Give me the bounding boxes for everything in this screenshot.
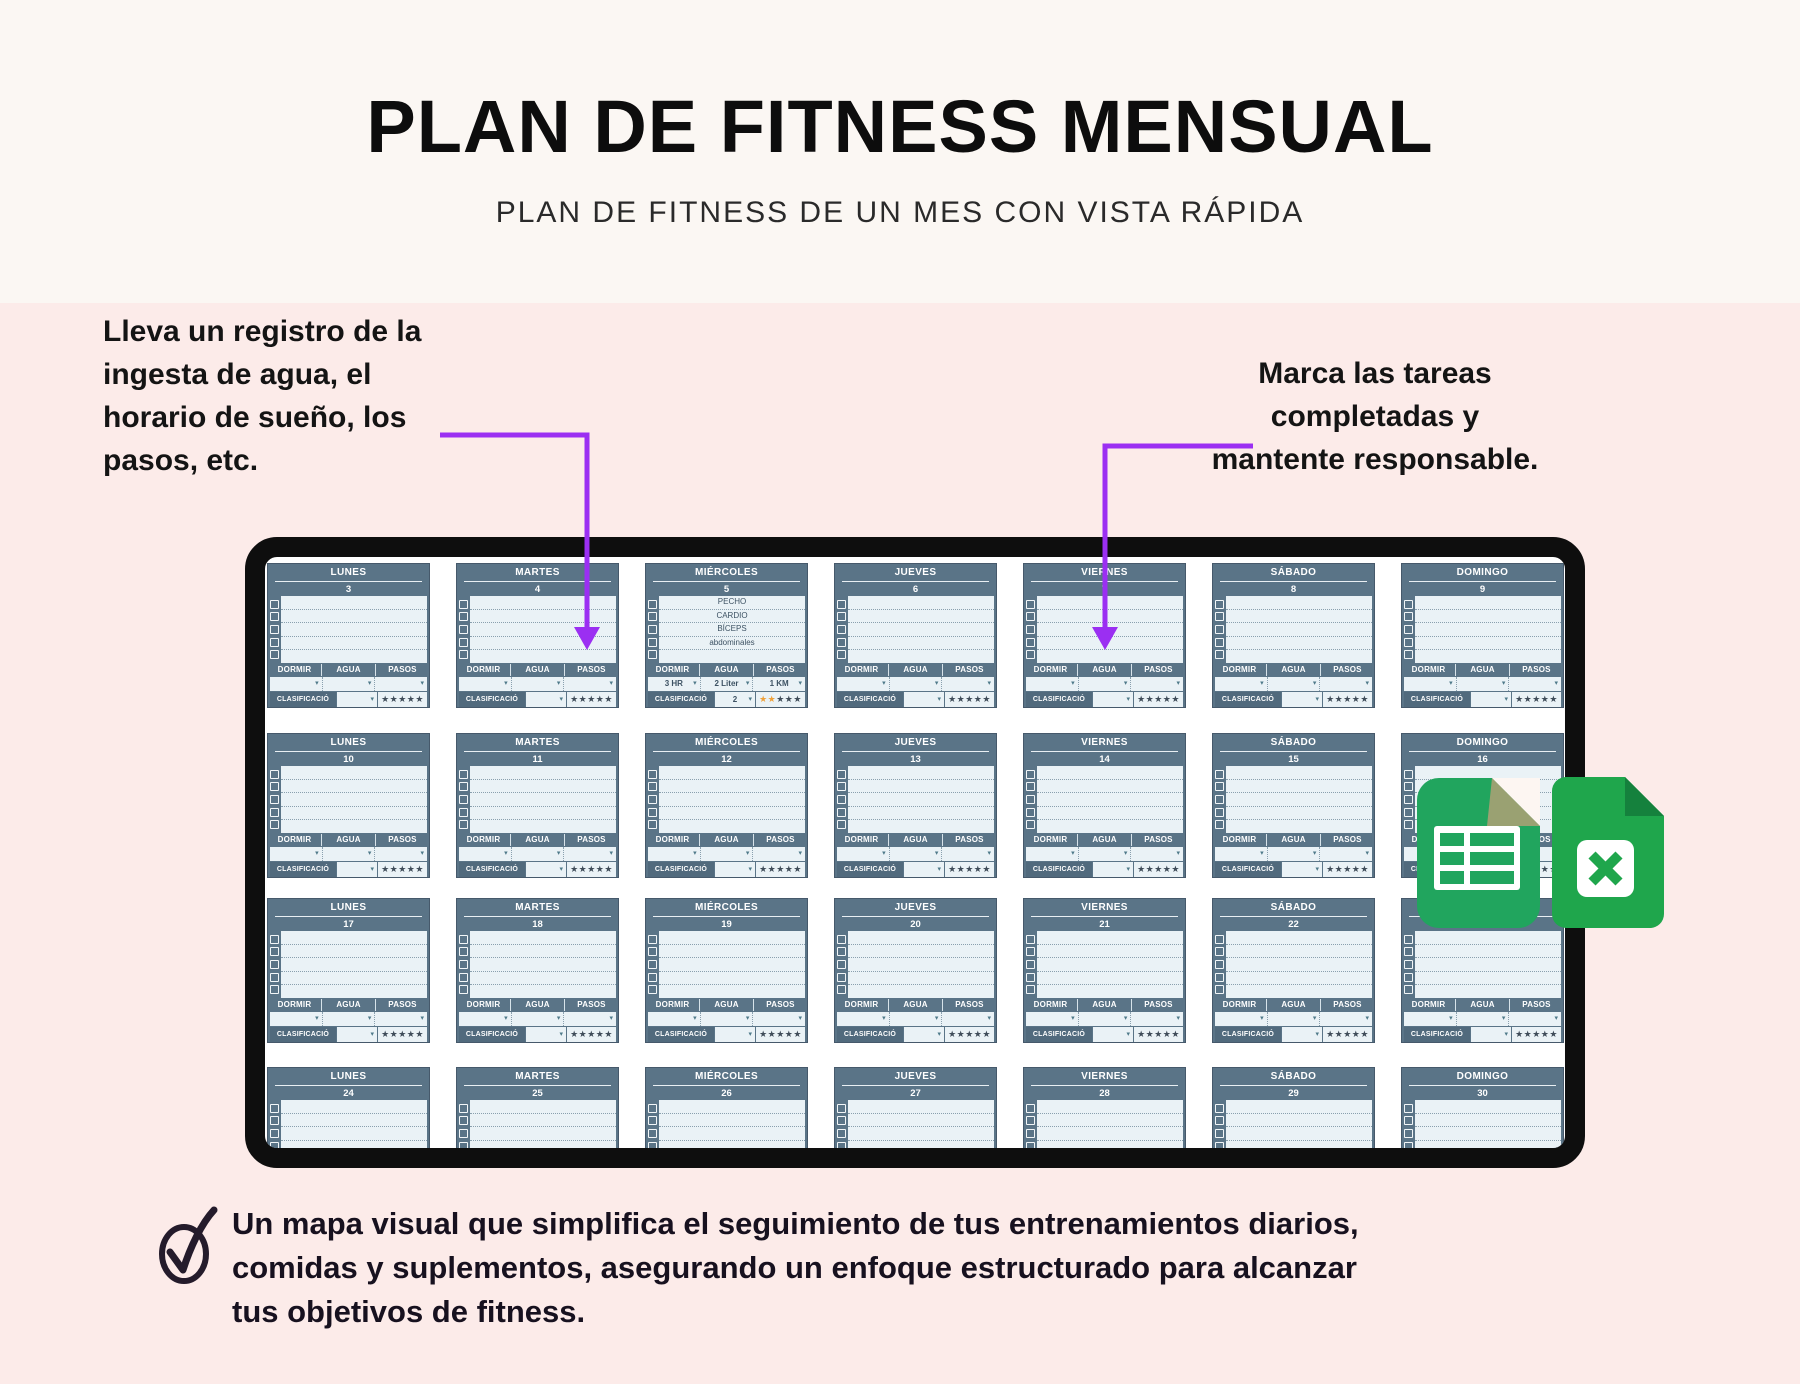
task-row[interactable] [1226, 793, 1372, 807]
task-checkbox-icon[interactable] [648, 782, 657, 791]
task-row[interactable] [281, 972, 427, 986]
task-row[interactable] [281, 623, 427, 637]
task-checkbox-icon[interactable] [1026, 960, 1035, 969]
task-checkbox-icon[interactable] [1404, 960, 1413, 969]
task-row[interactable] [1226, 807, 1372, 821]
task-row[interactable] [281, 945, 427, 959]
rating-stars[interactable]: ★★★★★ [945, 692, 994, 707]
task-row[interactable] [1226, 650, 1372, 663]
task-checkbox-icon[interactable] [459, 638, 468, 647]
water-value-dropdown[interactable]: ▾ [511, 677, 564, 691]
task-row[interactable] [848, 820, 994, 833]
task-checkbox-icon[interactable] [1026, 1129, 1035, 1138]
task-row[interactable] [281, 1141, 427, 1155]
water-value-dropdown[interactable]: ▾ [322, 677, 375, 691]
task-checkbox-icon[interactable] [459, 1142, 468, 1151]
task-checkbox-icon[interactable] [837, 1116, 846, 1125]
task-checkbox-icon[interactable] [648, 820, 657, 829]
task-checkbox-icon[interactable] [1404, 1116, 1413, 1125]
task-checkbox-icon[interactable] [1404, 770, 1413, 779]
sleep-value-dropdown[interactable]: ▾ [270, 677, 322, 691]
task-checkbox-icon[interactable] [459, 1104, 468, 1113]
task-row[interactable]: PECHO [659, 596, 805, 610]
task-checkbox-icon[interactable] [1404, 947, 1413, 956]
task-row[interactable] [848, 637, 994, 651]
task-checkbox-icon[interactable] [648, 1104, 657, 1113]
rating-stars[interactable]: ★★★★★ [1323, 862, 1372, 877]
water-value-dropdown[interactable]: ▾ [889, 847, 942, 861]
task-row[interactable] [1415, 1127, 1561, 1141]
task-checkbox-icon[interactable] [270, 770, 279, 779]
task-row[interactable] [1226, 985, 1372, 998]
rating-value-dropdown[interactable]: ▾ [1282, 1027, 1322, 1042]
task-checkbox-icon[interactable] [1026, 638, 1035, 647]
steps-value-dropdown[interactable]: ▾ [563, 677, 616, 691]
task-checkbox-icon[interactable] [1215, 1129, 1224, 1138]
rating-stars[interactable]: ★★★★★ [1134, 1027, 1183, 1042]
task-row[interactable] [470, 780, 616, 794]
sleep-value-dropdown[interactable]: ▾ [1026, 1012, 1078, 1026]
task-row[interactable] [1037, 807, 1183, 821]
task-row[interactable] [1415, 945, 1561, 959]
task-checkbox-icon[interactable] [837, 600, 846, 609]
task-checkbox-icon[interactable] [270, 985, 279, 994]
task-row[interactable]: CARDIO [659, 610, 805, 624]
task-checkbox-icon[interactable] [1215, 1104, 1224, 1113]
task-row[interactable] [1037, 766, 1183, 780]
task-checkbox-icon[interactable] [1026, 1116, 1035, 1125]
steps-value-dropdown[interactable]: ▾ [1130, 847, 1183, 861]
task-checkbox-icon[interactable] [270, 1142, 279, 1151]
task-checkbox-icon[interactable] [1026, 973, 1035, 982]
water-value-dropdown[interactable]: ▾ [1078, 677, 1131, 691]
task-row[interactable] [470, 958, 616, 972]
task-checkbox-icon[interactable] [459, 612, 468, 621]
task-row[interactable] [1037, 972, 1183, 986]
task-checkbox-icon[interactable] [1404, 795, 1413, 804]
task-checkbox-icon[interactable] [648, 947, 657, 956]
task-row[interactable] [848, 766, 994, 780]
task-checkbox-icon[interactable] [1026, 625, 1035, 634]
task-row[interactable] [848, 985, 994, 998]
task-row[interactable] [1226, 596, 1372, 610]
task-row[interactable] [281, 637, 427, 651]
task-row[interactable] [659, 1154, 805, 1167]
sleep-value-dropdown[interactable]: ▾ [1215, 677, 1267, 691]
task-checkbox-icon[interactable] [837, 960, 846, 969]
task-row[interactable] [470, 1114, 616, 1128]
task-checkbox-icon[interactable] [1404, 1154, 1413, 1163]
task-checkbox-icon[interactable] [1215, 650, 1224, 659]
task-checkbox-icon[interactable] [270, 1154, 279, 1163]
task-row[interactable] [848, 1141, 994, 1155]
rating-value-dropdown[interactable]: ▾ [337, 1027, 377, 1042]
task-row[interactable] [1037, 623, 1183, 637]
task-checkbox-icon[interactable] [1026, 935, 1035, 944]
rating-value-dropdown[interactable]: ▾ [1471, 1027, 1511, 1042]
task-row[interactable] [470, 793, 616, 807]
rating-value-dropdown[interactable]: ▾ [1282, 692, 1322, 707]
sleep-value-dropdown[interactable]: ▾ [1026, 847, 1078, 861]
task-row[interactable] [1415, 972, 1561, 986]
task-row[interactable] [470, 610, 616, 624]
task-row[interactable] [848, 931, 994, 945]
task-row[interactable] [1037, 931, 1183, 945]
task-row[interactable] [281, 985, 427, 998]
task-checkbox-icon[interactable] [459, 625, 468, 634]
task-checkbox-icon[interactable] [1404, 638, 1413, 647]
rating-value-dropdown[interactable]: ▾ [337, 862, 377, 877]
sleep-value-dropdown[interactable]: ▾ [648, 1012, 700, 1026]
task-checkbox-icon[interactable] [837, 625, 846, 634]
rating-stars[interactable]: ★★★★★ [1323, 1027, 1372, 1042]
rating-stars[interactable]: ★★★★★ [756, 862, 805, 877]
task-row[interactable] [848, 958, 994, 972]
task-checkbox-icon[interactable] [837, 820, 846, 829]
water-value-dropdown[interactable]: ▾ [889, 677, 942, 691]
task-row[interactable] [470, 972, 616, 986]
task-checkbox-icon[interactable] [1215, 808, 1224, 817]
task-checkbox-icon[interactable] [648, 935, 657, 944]
steps-value-dropdown[interactable]: ▾ [941, 677, 994, 691]
task-row[interactable] [470, 766, 616, 780]
rating-stars[interactable]: ★★★★★ [378, 1027, 427, 1042]
task-checkbox-icon[interactable] [1026, 1154, 1035, 1163]
task-row[interactable] [281, 780, 427, 794]
sleep-value-dropdown[interactable]: ▾ [1404, 1012, 1456, 1026]
task-row[interactable] [281, 807, 427, 821]
sleep-value-dropdown[interactable]: ▾ [1404, 677, 1456, 691]
task-row[interactable] [659, 1114, 805, 1128]
steps-value-dropdown[interactable]: ▾ [941, 1012, 994, 1026]
water-value-dropdown[interactable]: ▾ [889, 1012, 942, 1026]
task-row[interactable] [848, 793, 994, 807]
rating-value-dropdown[interactable]: ▾ [1282, 862, 1322, 877]
sleep-value-dropdown[interactable]: ▾ [270, 1012, 322, 1026]
sleep-value-dropdown[interactable]: ▾ [270, 847, 322, 861]
task-row[interactable] [281, 958, 427, 972]
task-checkbox-icon[interactable] [459, 600, 468, 609]
task-checkbox-icon[interactable] [837, 973, 846, 982]
task-row[interactable] [848, 1154, 994, 1167]
task-checkbox-icon[interactable] [648, 973, 657, 982]
water-value-dropdown[interactable]: ▾ [1456, 677, 1509, 691]
task-row[interactable] [1415, 637, 1561, 651]
water-value-dropdown[interactable]: ▾ [1078, 1012, 1131, 1026]
rating-stars[interactable]: ★★★★★ [756, 1027, 805, 1042]
task-checkbox-icon[interactable] [648, 625, 657, 634]
task-row[interactable] [1226, 1154, 1372, 1167]
steps-value-dropdown[interactable]: ▾ [1508, 1012, 1561, 1026]
rating-value-dropdown[interactable]: ▾ [904, 1027, 944, 1042]
task-row[interactable] [281, 766, 427, 780]
task-checkbox-icon[interactable] [1215, 947, 1224, 956]
task-checkbox-icon[interactable] [837, 612, 846, 621]
task-row[interactable] [1415, 623, 1561, 637]
task-row[interactable] [1037, 596, 1183, 610]
task-checkbox-icon[interactable] [837, 1129, 846, 1138]
task-checkbox-icon[interactable] [837, 638, 846, 647]
task-checkbox-icon[interactable] [270, 1104, 279, 1113]
task-row[interactable] [1037, 1127, 1183, 1141]
steps-value-dropdown[interactable]: ▾ [563, 847, 616, 861]
task-row[interactable] [848, 650, 994, 663]
steps-value-dropdown[interactable]: ▾ [1319, 847, 1372, 861]
task-checkbox-icon[interactable] [1404, 973, 1413, 982]
task-checkbox-icon[interactable] [837, 1142, 846, 1151]
water-value-dropdown[interactable]: ▾ [700, 847, 753, 861]
task-checkbox-icon[interactable] [648, 650, 657, 659]
task-checkbox-icon[interactable] [459, 770, 468, 779]
task-checkbox-icon[interactable] [1026, 600, 1035, 609]
steps-value-dropdown[interactable]: ▾ [1130, 1012, 1183, 1026]
rating-value-dropdown[interactable]: ▾ [526, 692, 566, 707]
task-row[interactable] [659, 958, 805, 972]
task-checkbox-icon[interactable] [459, 947, 468, 956]
task-row[interactable] [848, 1127, 994, 1141]
task-row[interactable] [659, 1127, 805, 1141]
task-checkbox-icon[interactable] [837, 808, 846, 817]
task-checkbox-icon[interactable] [270, 625, 279, 634]
task-checkbox-icon[interactable] [1404, 820, 1413, 829]
task-row[interactable] [1226, 972, 1372, 986]
sleep-value-dropdown[interactable]: ▾ [459, 847, 511, 861]
task-row[interactable] [1226, 1114, 1372, 1128]
task-checkbox-icon[interactable] [459, 795, 468, 804]
task-checkbox-icon[interactable] [1026, 770, 1035, 779]
task-checkbox-icon[interactable] [270, 795, 279, 804]
task-checkbox-icon[interactable] [270, 782, 279, 791]
task-row[interactable] [1037, 985, 1183, 998]
task-row[interactable] [848, 945, 994, 959]
task-checkbox-icon[interactable] [270, 638, 279, 647]
rating-value-dropdown[interactable]: ▾ [337, 692, 377, 707]
task-checkbox-icon[interactable] [648, 960, 657, 969]
task-row[interactable] [470, 1100, 616, 1114]
rating-value-dropdown[interactable]: ▾ [526, 1027, 566, 1042]
task-row[interactable] [1415, 610, 1561, 624]
rating-value-dropdown[interactable]: ▾ [1093, 1027, 1133, 1042]
task-row[interactable] [281, 793, 427, 807]
rating-stars[interactable]: ★★★★★ [945, 1027, 994, 1042]
task-checkbox-icon[interactable] [1404, 808, 1413, 817]
task-row[interactable] [1415, 958, 1561, 972]
task-checkbox-icon[interactable] [648, 1154, 657, 1163]
task-checkbox-icon[interactable] [1215, 770, 1224, 779]
sleep-value-dropdown[interactable]: 3 HR▾ [648, 677, 700, 691]
task-checkbox-icon[interactable] [648, 638, 657, 647]
rating-stars[interactable]: ★★★★★ [378, 862, 427, 877]
task-checkbox-icon[interactable] [1215, 1116, 1224, 1125]
rating-stars[interactable]: ★★★★★ [945, 862, 994, 877]
steps-value-dropdown[interactable]: ▾ [752, 847, 805, 861]
task-row[interactable] [1037, 1100, 1183, 1114]
task-row[interactable] [470, 985, 616, 998]
task-checkbox-icon[interactable] [1404, 935, 1413, 944]
task-checkbox-icon[interactable] [648, 985, 657, 994]
task-checkbox-icon[interactable] [1215, 820, 1224, 829]
task-row[interactable] [1415, 1100, 1561, 1114]
task-checkbox-icon[interactable] [270, 650, 279, 659]
task-row[interactable] [1415, 931, 1561, 945]
task-checkbox-icon[interactable] [648, 770, 657, 779]
task-checkbox-icon[interactable] [648, 808, 657, 817]
task-checkbox-icon[interactable] [1215, 795, 1224, 804]
water-value-dropdown[interactable]: 2 Liter▾ [700, 677, 753, 691]
task-row[interactable] [659, 780, 805, 794]
task-checkbox-icon[interactable] [270, 935, 279, 944]
task-row[interactable] [281, 650, 427, 663]
task-row[interactable] [659, 931, 805, 945]
task-row[interactable] [470, 650, 616, 663]
steps-value-dropdown[interactable]: ▾ [374, 677, 427, 691]
task-checkbox-icon[interactable] [1215, 1142, 1224, 1151]
rating-stars[interactable]: ★★★★★ [567, 1027, 616, 1042]
water-value-dropdown[interactable]: ▾ [322, 847, 375, 861]
task-checkbox-icon[interactable] [459, 820, 468, 829]
task-row[interactable] [1037, 1114, 1183, 1128]
water-value-dropdown[interactable]: ▾ [322, 1012, 375, 1026]
water-value-dropdown[interactable]: ▾ [1267, 847, 1320, 861]
rating-stars[interactable]: ★★★★★ [756, 692, 805, 707]
task-row[interactable] [470, 1141, 616, 1155]
task-checkbox-icon[interactable] [270, 1116, 279, 1125]
task-checkbox-icon[interactable] [1026, 1142, 1035, 1151]
task-checkbox-icon[interactable] [1026, 612, 1035, 621]
task-checkbox-icon[interactable] [1404, 1129, 1413, 1138]
task-row[interactable] [1226, 1100, 1372, 1114]
steps-value-dropdown[interactable]: ▾ [563, 1012, 616, 1026]
rating-stars[interactable]: ★★★★★ [567, 692, 616, 707]
task-row[interactable] [1037, 637, 1183, 651]
task-row[interactable] [470, 1154, 616, 1167]
task-row[interactable] [659, 1141, 805, 1155]
task-checkbox-icon[interactable] [459, 650, 468, 659]
rating-value-dropdown[interactable]: ▾ [715, 1027, 755, 1042]
task-row[interactable] [470, 1127, 616, 1141]
task-checkbox-icon[interactable] [1026, 1104, 1035, 1113]
task-checkbox-icon[interactable] [1215, 600, 1224, 609]
task-row[interactable] [848, 596, 994, 610]
task-checkbox-icon[interactable] [837, 795, 846, 804]
task-row[interactable] [1415, 1114, 1561, 1128]
task-row[interactable] [1415, 596, 1561, 610]
task-checkbox-icon[interactable] [648, 795, 657, 804]
task-checkbox-icon[interactable] [1215, 935, 1224, 944]
task-row[interactable] [1226, 945, 1372, 959]
steps-value-dropdown[interactable]: ▾ [374, 847, 427, 861]
task-checkbox-icon[interactable] [270, 960, 279, 969]
task-checkbox-icon[interactable] [1215, 973, 1224, 982]
water-value-dropdown[interactable]: ▾ [511, 1012, 564, 1026]
task-checkbox-icon[interactable] [648, 1129, 657, 1138]
task-row[interactable] [1415, 985, 1561, 998]
task-row[interactable] [281, 820, 427, 833]
task-row[interactable] [848, 780, 994, 794]
task-checkbox-icon[interactable] [459, 985, 468, 994]
water-value-dropdown[interactable]: ▾ [1456, 1012, 1509, 1026]
task-checkbox-icon[interactable] [1215, 782, 1224, 791]
task-row[interactable] [659, 972, 805, 986]
task-checkbox-icon[interactable] [1215, 612, 1224, 621]
rating-value-dropdown[interactable]: ▾ [1471, 692, 1511, 707]
task-row[interactable] [659, 807, 805, 821]
task-row[interactable] [1226, 637, 1372, 651]
task-row[interactable] [470, 637, 616, 651]
task-row[interactable] [1226, 766, 1372, 780]
task-row[interactable] [281, 596, 427, 610]
sleep-value-dropdown[interactable]: ▾ [648, 847, 700, 861]
rating-value-dropdown[interactable]: ▾ [526, 862, 566, 877]
task-checkbox-icon[interactable] [1404, 782, 1413, 791]
water-value-dropdown[interactable]: ▾ [511, 847, 564, 861]
task-row[interactable] [659, 985, 805, 998]
task-checkbox-icon[interactable] [270, 808, 279, 817]
steps-value-dropdown[interactable]: ▾ [1319, 677, 1372, 691]
task-checkbox-icon[interactable] [270, 820, 279, 829]
task-row[interactable] [470, 623, 616, 637]
task-row[interactable] [281, 1154, 427, 1167]
task-checkbox-icon[interactable] [1404, 1142, 1413, 1151]
task-checkbox-icon[interactable] [1404, 1104, 1413, 1113]
task-checkbox-icon[interactable] [1404, 985, 1413, 994]
task-checkbox-icon[interactable] [837, 782, 846, 791]
sleep-value-dropdown[interactable]: ▾ [837, 1012, 889, 1026]
rating-value-dropdown[interactable]: ▾ [715, 862, 755, 877]
water-value-dropdown[interactable]: ▾ [1267, 1012, 1320, 1026]
task-checkbox-icon[interactable] [459, 1154, 468, 1163]
task-row[interactable] [470, 807, 616, 821]
sleep-value-dropdown[interactable]: ▾ [1215, 847, 1267, 861]
task-checkbox-icon[interactable] [1215, 1154, 1224, 1163]
task-checkbox-icon[interactable] [459, 960, 468, 969]
task-checkbox-icon[interactable] [459, 935, 468, 944]
sleep-value-dropdown[interactable]: ▾ [459, 1012, 511, 1026]
task-checkbox-icon[interactable] [1215, 625, 1224, 634]
task-checkbox-icon[interactable] [1404, 650, 1413, 659]
task-checkbox-icon[interactable] [459, 1129, 468, 1138]
task-row[interactable] [1226, 1127, 1372, 1141]
task-row[interactable] [659, 1100, 805, 1114]
task-checkbox-icon[interactable] [1026, 808, 1035, 817]
task-checkbox-icon[interactable] [1404, 625, 1413, 634]
task-row[interactable] [281, 931, 427, 945]
task-checkbox-icon[interactable] [1215, 985, 1224, 994]
steps-value-dropdown[interactable]: ▾ [1319, 1012, 1372, 1026]
steps-value-dropdown[interactable]: ▾ [752, 1012, 805, 1026]
task-row[interactable] [1037, 1141, 1183, 1155]
task-checkbox-icon[interactable] [1404, 600, 1413, 609]
task-row[interactable] [1037, 820, 1183, 833]
task-row[interactable] [470, 596, 616, 610]
task-checkbox-icon[interactable] [837, 1104, 846, 1113]
water-value-dropdown[interactable]: ▾ [1078, 847, 1131, 861]
task-row[interactable] [659, 945, 805, 959]
task-row[interactable] [848, 972, 994, 986]
task-checkbox-icon[interactable] [1404, 612, 1413, 621]
rating-value-dropdown[interactable]: ▾ [904, 692, 944, 707]
task-checkbox-icon[interactable] [1026, 795, 1035, 804]
task-row[interactable]: abdominales [659, 637, 805, 651]
task-row[interactable] [470, 945, 616, 959]
task-row[interactable] [848, 807, 994, 821]
task-checkbox-icon[interactable] [837, 947, 846, 956]
task-row[interactable] [1037, 945, 1183, 959]
water-value-dropdown[interactable]: ▾ [1267, 677, 1320, 691]
task-checkbox-icon[interactable] [648, 612, 657, 621]
rating-stars[interactable]: ★★★★★ [1134, 692, 1183, 707]
rating-stars[interactable]: ★★★★★ [1512, 1027, 1561, 1042]
